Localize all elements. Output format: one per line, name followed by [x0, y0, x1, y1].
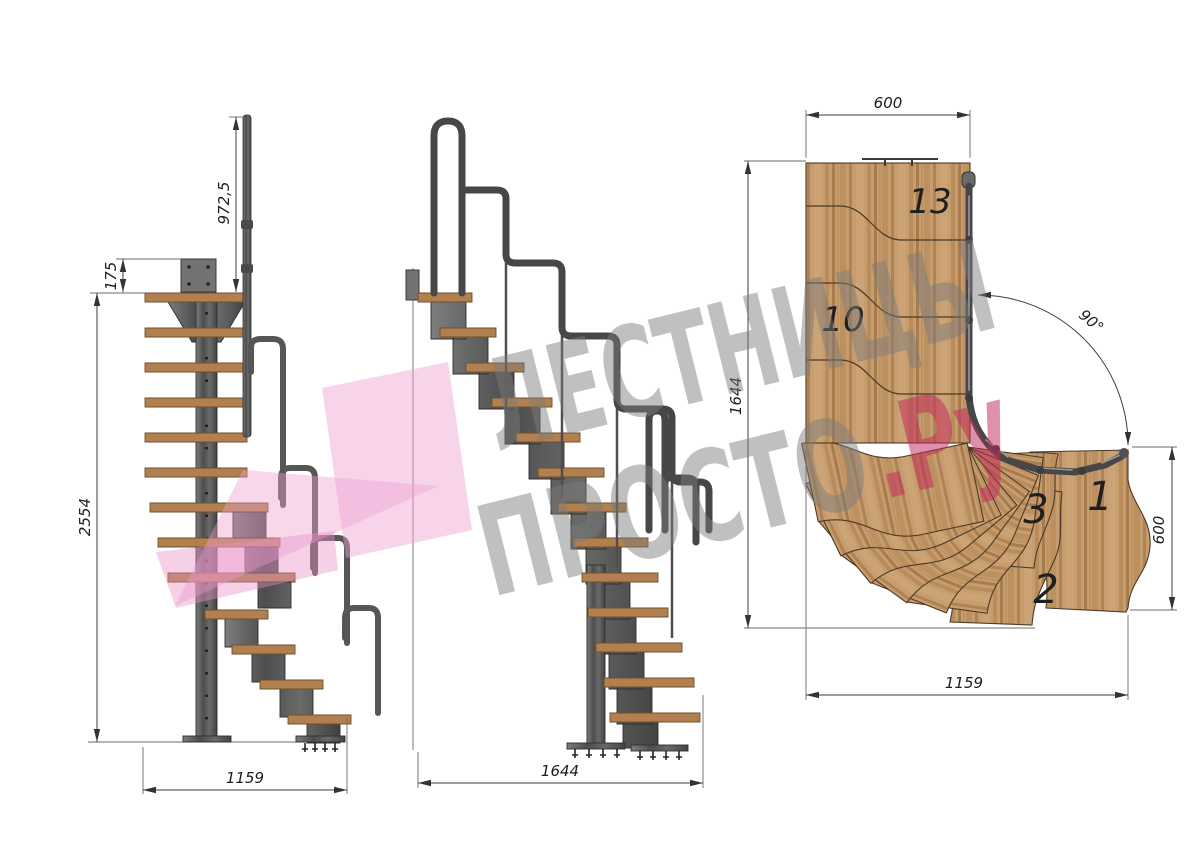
wall-mount-plate [181, 259, 216, 292]
turn-angle-value: 90° [1075, 306, 1107, 337]
lower-base-plate [296, 736, 345, 742]
rail-post-tall [243, 115, 251, 437]
dim-bottom-width-value: 1159 [945, 674, 983, 692]
column-base-plate [183, 736, 231, 742]
rail-joint [1036, 466, 1044, 474]
dim-depth-value: 1159 [226, 769, 264, 787]
dim-right-depth-value: 600 [1150, 516, 1168, 545]
dim-run-value: 1644 [541, 762, 579, 780]
column-base-plate [567, 743, 625, 749]
dim-top-width-value: 600 [874, 94, 903, 112]
rail-end-cap [1119, 448, 1129, 458]
dim-run: 1644 [418, 695, 703, 788]
post-joint [241, 264, 253, 273]
post-joint [241, 220, 253, 229]
step-label-2: 2 [1033, 567, 1058, 613]
dim-rail-height: 972,5 [215, 117, 244, 292]
step-label-1: 1 [1087, 474, 1112, 520]
handrail-loop [434, 121, 462, 293]
end-module-base [631, 745, 688, 751]
dim-rail-height-value: 972,5 [215, 182, 233, 225]
dim-plate-offset-value: 175 [102, 262, 120, 291]
staircase-drawing: 972,5 175 2554 1159 [0, 0, 1200, 849]
dim-plate-offset: 175 [102, 259, 181, 292]
wall-bracket [406, 270, 419, 300]
anchor-bolts [302, 743, 338, 752]
dim-total-height-value: 2554 [76, 498, 94, 536]
dim-top-width: 600 [806, 94, 970, 158]
step-label-13: 13 [908, 182, 951, 222]
rail-joint [1078, 467, 1086, 475]
step-label-3: 3 [1023, 487, 1048, 533]
technical-drawing-canvas: 972,5 175 2554 1159 [0, 0, 1200, 849]
dim-total-height: 2554 [76, 293, 145, 742]
